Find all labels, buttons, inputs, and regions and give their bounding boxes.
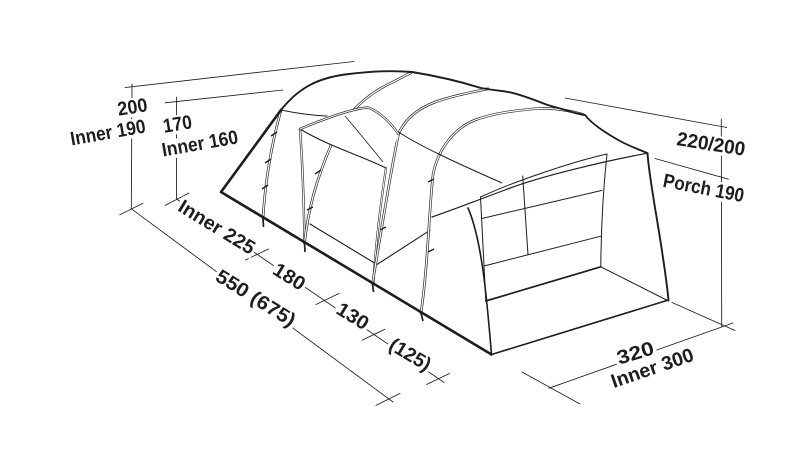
svg-text:170: 170: [161, 111, 193, 137]
